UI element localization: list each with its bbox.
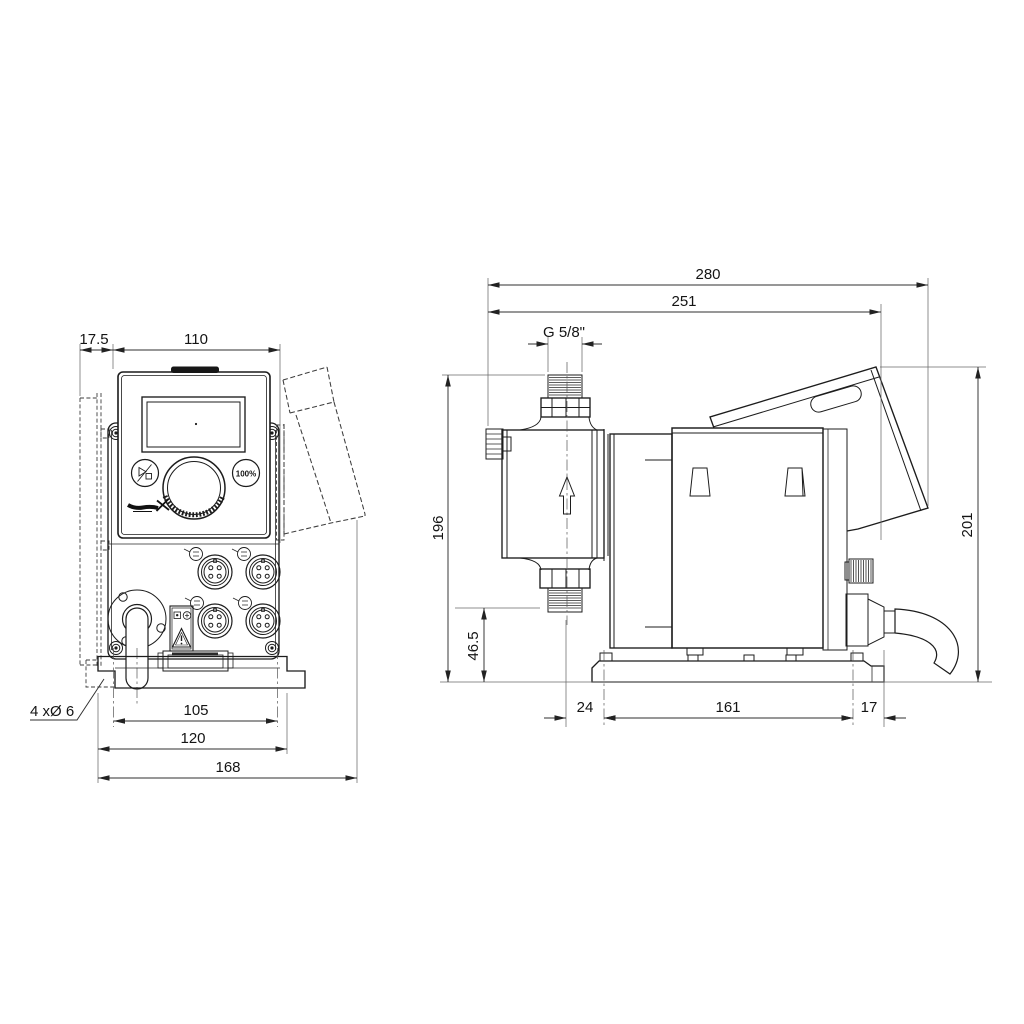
rear-cable (895, 609, 958, 674)
dim-mounting-depth: 251 (671, 293, 696, 310)
socket-id-icon (233, 597, 252, 610)
dim-wall-offset: 17.5 (79, 331, 108, 348)
dim-hole-spacing: 105 (183, 702, 208, 719)
dim-base-length: 161 (715, 699, 740, 716)
cube-handle-slot (809, 384, 863, 414)
control-panel: 100% (118, 367, 270, 539)
phantom-control-cube-front (283, 367, 365, 534)
pump-housing-side (610, 428, 847, 655)
dim-overall-width: 168 (215, 759, 240, 776)
wall-bracket-hidden (80, 393, 115, 687)
m12-socket[interactable] (246, 555, 280, 589)
side-view: 280 251 G 5/8" 196 46.5 201 24 161 17 (430, 266, 992, 727)
clip-tab (690, 468, 710, 496)
dim-connection-thread: G 5/8" (543, 324, 585, 341)
dim-bracket-width: 120 (180, 730, 205, 747)
dim-height-connection: 196 (430, 515, 447, 540)
corner-screw (266, 642, 279, 655)
cable-clamp (158, 651, 233, 671)
dim-panel-width: 110 (184, 331, 208, 348)
control-cube-side (710, 367, 928, 531)
rear-cable-gland (846, 594, 958, 674)
socket-id-icon (184, 548, 203, 561)
front-view: 100% (30, 331, 365, 783)
dim-height-suction: 46.5 (465, 631, 482, 660)
panel-top-tab (171, 367, 219, 374)
full-capacity-label: 100% (236, 470, 256, 479)
m12-socket[interactable] (246, 604, 280, 638)
dosing-head (486, 362, 608, 625)
dim-rear-offset: 17 (861, 699, 878, 716)
warning-label-plate (170, 606, 193, 651)
dim-front-offset: 24 (577, 699, 594, 716)
clip-tab (785, 468, 805, 496)
warning-triangle-icon (173, 629, 191, 648)
base-side (592, 653, 884, 682)
socket-id-icon (185, 597, 204, 610)
side-view-dimensions: 280 251 G 5/8" 196 46.5 201 24 161 17 (430, 266, 992, 727)
socket-id-icon (232, 548, 251, 561)
dim-overall-depth: 280 (695, 266, 720, 283)
m12-socket[interactable] (198, 555, 232, 589)
technical-drawing-canvas: 100% (0, 0, 1024, 1024)
dim-overall-height: 201 (959, 512, 976, 537)
m12-socket[interactable] (198, 604, 232, 638)
rear-connections (845, 559, 958, 674)
dim-mounting-holes: 4 xØ 6 (30, 703, 74, 720)
connector-field (108, 548, 280, 707)
